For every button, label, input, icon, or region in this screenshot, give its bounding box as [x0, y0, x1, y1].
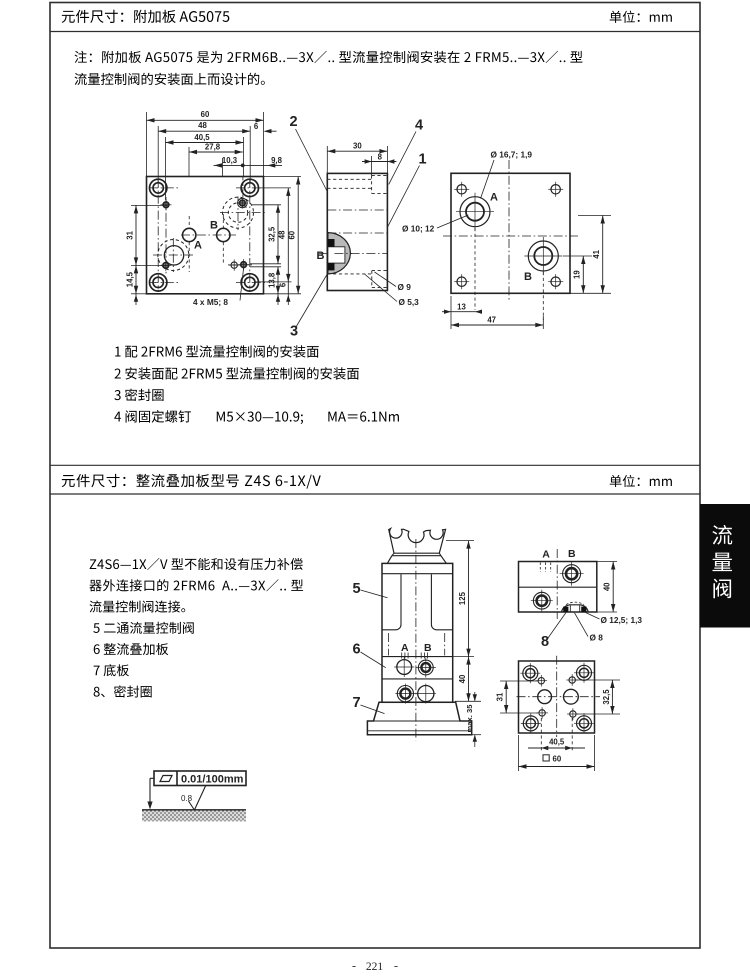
- svg-text:A: A: [194, 239, 202, 251]
- svg-text:6: 6: [353, 642, 361, 658]
- svg-text:13: 13: [457, 302, 466, 311]
- svg-text:9,8: 9,8: [271, 156, 283, 165]
- svg-text:48: 48: [198, 121, 207, 130]
- svg-text:-: -: [352, 959, 356, 973]
- svg-text:32,5: 32,5: [602, 689, 611, 705]
- svg-text:Ø 16,7; 1,9: Ø 16,7; 1,9: [491, 150, 533, 160]
- svg-text:125: 125: [458, 591, 467, 605]
- svg-text:60: 60: [288, 230, 297, 239]
- svg-text:B: B: [568, 548, 576, 560]
- svg-text:19: 19: [573, 270, 582, 279]
- svg-text:4 x M5; 8: 4 x M5; 8: [193, 297, 228, 307]
- svg-text:Ø 5,3: Ø 5,3: [399, 297, 420, 307]
- svg-text:60: 60: [553, 754, 562, 763]
- svg-text:14,5: 14,5: [125, 271, 134, 287]
- svg-text:Ø 10; 12: Ø 10; 12: [402, 223, 435, 233]
- svg-text:B: B: [210, 220, 218, 232]
- svg-text:B: B: [424, 642, 432, 654]
- svg-text:-: -: [394, 959, 398, 973]
- svg-text:31: 31: [125, 230, 134, 239]
- svg-text:A: A: [490, 192, 498, 204]
- svg-text:40,5: 40,5: [194, 133, 210, 142]
- svg-text:B: B: [524, 271, 532, 283]
- svg-text:8: 8: [541, 634, 549, 650]
- svg-text:7: 7: [353, 695, 361, 711]
- svg-text:max. 35: max. 35: [465, 704, 474, 733]
- svg-text:40: 40: [458, 674, 467, 683]
- svg-text:30: 30: [353, 142, 362, 151]
- svg-text:6: 6: [278, 282, 287, 287]
- svg-text:47: 47: [487, 316, 496, 325]
- svg-text:10,3: 10,3: [222, 156, 238, 165]
- svg-text:27,8: 27,8: [205, 143, 221, 152]
- svg-text:41: 41: [592, 249, 601, 258]
- svg-text:40: 40: [603, 582, 612, 591]
- svg-text:A: A: [542, 548, 550, 560]
- svg-text:4: 4: [415, 117, 423, 133]
- svg-text:Ø 9: Ø 9: [398, 282, 412, 292]
- svg-text:B: B: [317, 250, 325, 262]
- svg-text:40,5: 40,5: [549, 737, 565, 746]
- svg-text:48: 48: [278, 230, 287, 239]
- svg-text:60: 60: [201, 110, 210, 119]
- svg-text:1: 1: [419, 151, 427, 167]
- svg-text:5: 5: [353, 581, 361, 597]
- svg-text:8: 8: [378, 153, 383, 162]
- svg-text:31: 31: [496, 692, 505, 701]
- svg-text:32,5: 32,5: [267, 226, 276, 242]
- svg-text:2: 2: [290, 114, 298, 130]
- svg-text:Ø 12,5; 1,3: Ø 12,5; 1,3: [601, 615, 643, 625]
- svg-text:0.8: 0.8: [181, 794, 193, 803]
- svg-text:Ø 8: Ø 8: [590, 632, 604, 642]
- svg-text:0.01/100mm: 0.01/100mm: [181, 773, 244, 785]
- svg-text:A: A: [401, 642, 409, 654]
- svg-text:6: 6: [254, 122, 259, 131]
- svg-text:13,8: 13,8: [267, 272, 276, 288]
- svg-text:221: 221: [366, 961, 384, 973]
